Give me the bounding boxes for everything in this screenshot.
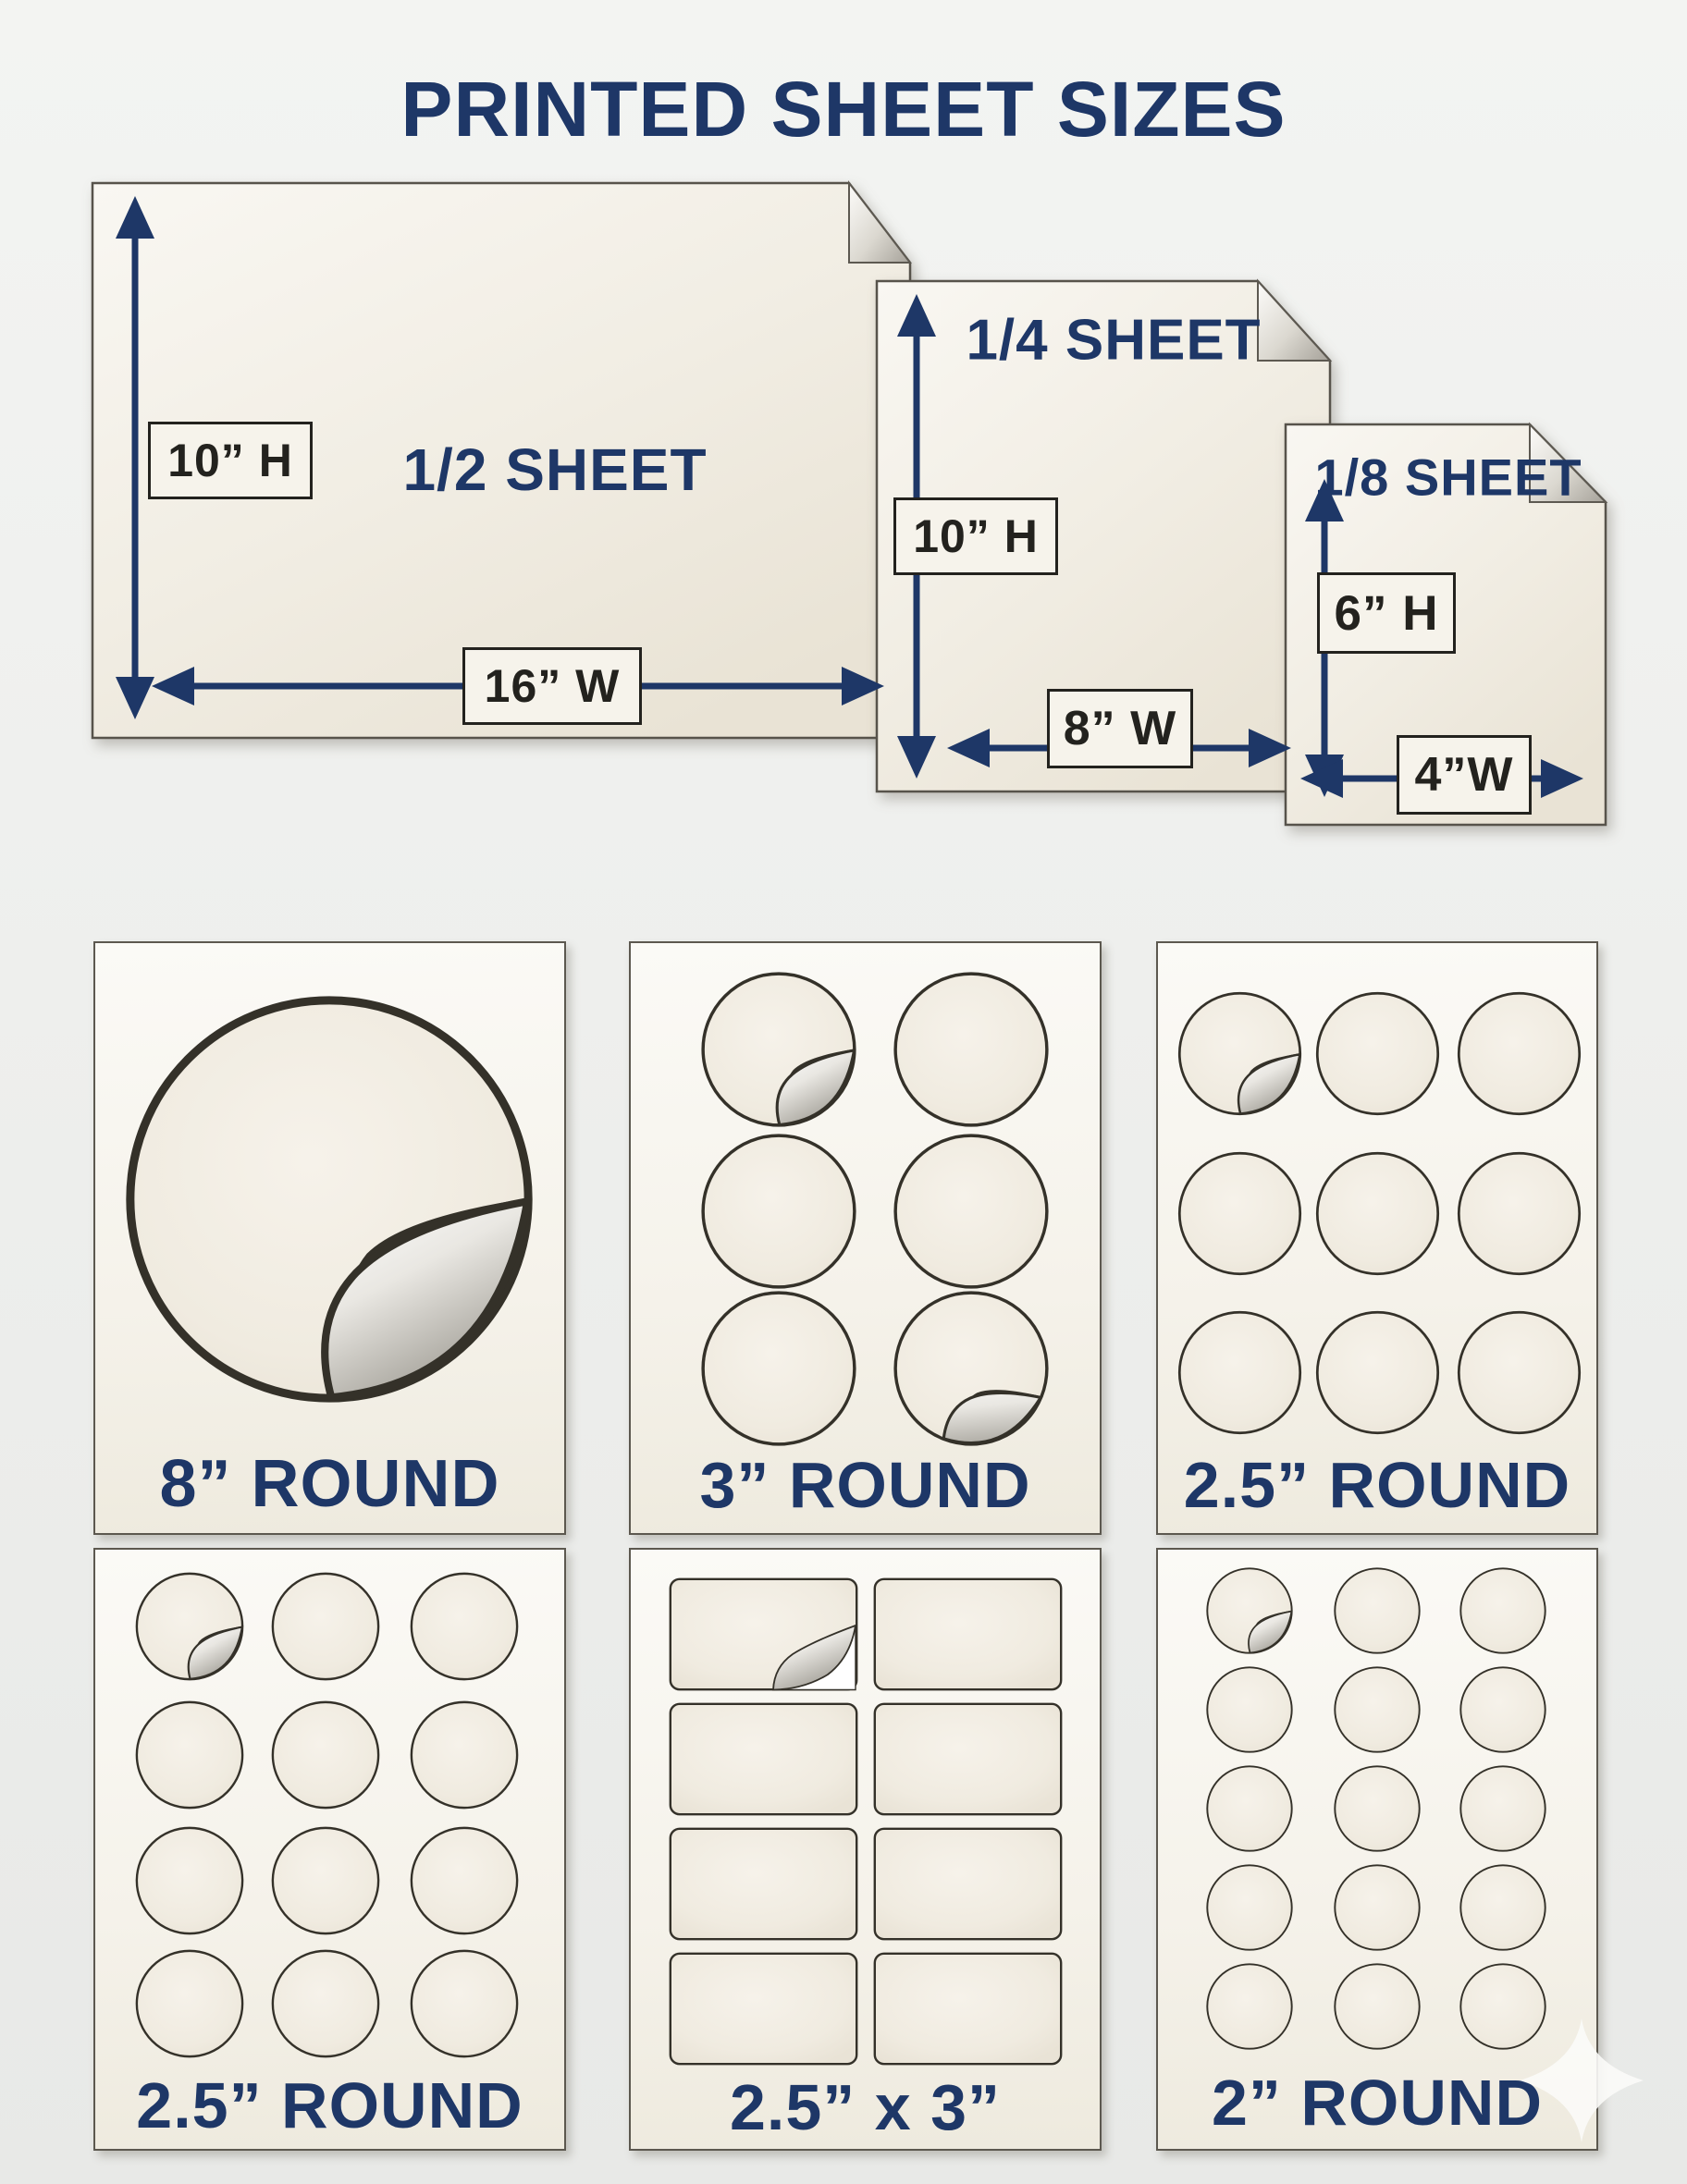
- arrow-head-right-icon: [1249, 729, 1291, 767]
- sticker-circle: [134, 1825, 245, 1936]
- sheet-quarter-width-dim: 8” W: [1047, 689, 1193, 768]
- sticker-circle: [1333, 1665, 1422, 1754]
- sticker-circle: [1205, 1764, 1294, 1853]
- sticker-circle: [134, 1948, 245, 2059]
- sticker-circle: [892, 1132, 1051, 1291]
- sticker-circle: [134, 1571, 245, 1682]
- sticker-circle: [1456, 990, 1582, 1117]
- card-2-5-round-9: 2.5” ROUND: [1156, 941, 1598, 1535]
- sticker-circle: [270, 1825, 381, 1936]
- sticker-circle: [1459, 1863, 1547, 1952]
- sticker-circle: [1333, 1566, 1422, 1655]
- arrow-head-down-icon: [897, 736, 936, 779]
- card-3-round: 3” ROUND: [629, 941, 1102, 1535]
- sticker-rect: [669, 1577, 858, 1691]
- sticker-circle: [409, 1571, 520, 1682]
- sticker-circle: [409, 1699, 520, 1810]
- card-2-5-round-12: 2.5” ROUND: [93, 1548, 566, 2151]
- sticker-rect: [669, 1702, 858, 1816]
- sheet-half-label: 1/2 SHEET: [402, 436, 707, 504]
- arrow-head-up-icon: [897, 294, 936, 337]
- sticker-circle: [1314, 1150, 1441, 1277]
- sticker-circle: [409, 1825, 520, 1936]
- sticker-circle: [1205, 1665, 1294, 1754]
- arrow-head-down-icon: [116, 677, 154, 719]
- sheet-half-width-dim: 16” W: [462, 647, 642, 725]
- arrow-head-left-icon: [1300, 759, 1343, 798]
- sticker-circle: [1459, 1566, 1547, 1655]
- sticker-circle: [1333, 1962, 1422, 2051]
- sticker-circle: [1176, 990, 1303, 1117]
- printed-sheet-sizes-infographic: PRINTED SHEET SIZES 1/2 SHEET10” H16” W1…: [0, 0, 1687, 2184]
- sticker-circle: [892, 970, 1051, 1129]
- sticker-rect: [873, 1827, 1063, 1941]
- sheet-eighth-width-dim: 4”W: [1397, 735, 1532, 815]
- sheet-eighth-label: 1/8 SHEET: [1314, 448, 1582, 508]
- sticker-rect: [873, 1702, 1063, 1816]
- card-2-5-round-9-label: 2.5” ROUND: [1158, 1446, 1596, 1524]
- sticker-circle: [1314, 1309, 1441, 1436]
- sticker-circle: [1333, 1863, 1422, 1952]
- sticker-circle: [1456, 1150, 1582, 1277]
- sticker-circle: [1176, 1309, 1303, 1436]
- sticker-circle: [1205, 1566, 1294, 1655]
- sticker-circle: [1205, 1863, 1294, 1952]
- sticker-circle: [270, 1948, 381, 2059]
- sticker-circle: [1314, 990, 1441, 1117]
- sheet-half-height-dim: 10” H: [148, 422, 313, 499]
- sticker-circle: [1205, 1962, 1294, 2051]
- card-2-5x3: 2.5” x 3”: [629, 1548, 1102, 2151]
- sticker-rect: [873, 1577, 1063, 1691]
- sticker-circle: [1459, 1665, 1547, 1754]
- sticker-circle: [892, 1289, 1051, 1448]
- card-8-round-label: 8” ROUND: [95, 1444, 564, 1524]
- sticker-circle: [270, 1571, 381, 1682]
- sticker-circle: [1333, 1764, 1422, 1853]
- sparkle-watermark-icon: [1517, 2016, 1646, 2145]
- folded-corner-icon: [1258, 281, 1330, 361]
- card-2-5-round-12-label: 2.5” ROUND: [95, 2067, 564, 2144]
- sheet-eighth-height-dim: 6” H: [1317, 572, 1456, 654]
- sheet-quarter-height-dim: 10” H: [893, 497, 1058, 575]
- sticker-circle: [699, 970, 858, 1129]
- sticker-circle: [120, 990, 538, 1408]
- sticker-circle: [1456, 1309, 1582, 1436]
- sticker-rect: [669, 1952, 858, 2066]
- sticker-circle: [270, 1699, 381, 1810]
- card-3-round-label: 3” ROUND: [631, 1446, 1100, 1524]
- sheet-quarter-label: 1/4 SHEET: [966, 308, 1261, 374]
- sticker-circle: [134, 1699, 245, 1810]
- sticker-circle: [699, 1289, 858, 1448]
- card-8-round: 8” ROUND: [93, 941, 566, 1535]
- sticker-circle: [1459, 1764, 1547, 1853]
- arrow-head-right-icon: [842, 667, 884, 706]
- sticker-circle: [699, 1132, 858, 1291]
- arrow-head-right-icon: [1541, 759, 1583, 798]
- arrow-head-left-icon: [947, 729, 990, 767]
- sticker-rect: [669, 1827, 858, 1941]
- folded-corner-icon: [849, 183, 910, 263]
- arrow-head-up-icon: [116, 196, 154, 239]
- arrow-head-left-icon: [152, 667, 194, 706]
- card-2-5x3-label: 2.5” x 3”: [631, 2068, 1100, 2146]
- sticker-circle: [409, 1948, 520, 2059]
- sticker-rect: [873, 1952, 1063, 2066]
- page-title: PRINTED SHEET SIZES: [0, 61, 1687, 157]
- sticker-circle: [1176, 1150, 1303, 1277]
